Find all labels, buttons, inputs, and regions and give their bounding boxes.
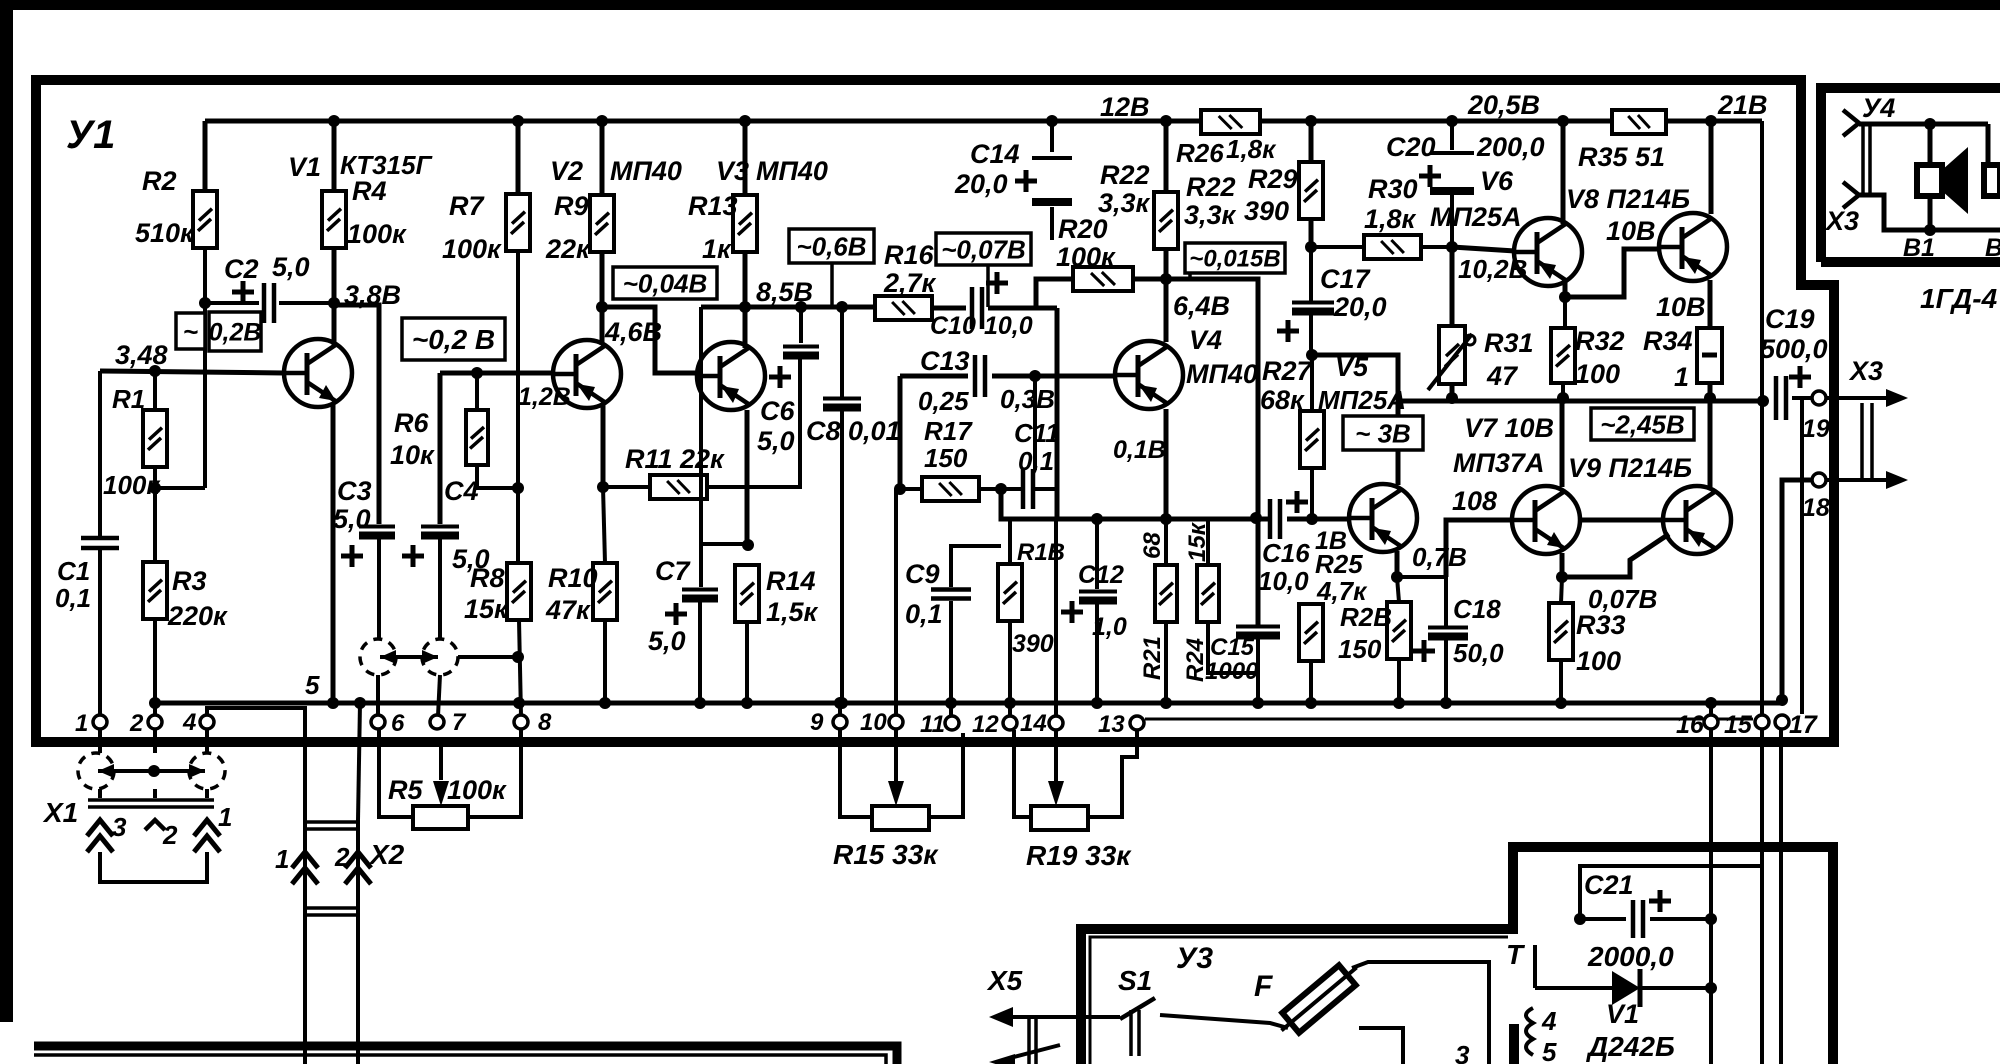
svg-text:V1: V1 xyxy=(1606,999,1639,1029)
svg-text:С20: С20 xyxy=(1386,132,1436,162)
svg-text:V2: V2 xyxy=(550,156,583,186)
svg-text:3: 3 xyxy=(1455,1040,1470,1064)
svg-text:108: 108 xyxy=(1452,486,1497,516)
svg-text:3,48: 3,48 xyxy=(115,340,168,370)
svg-text:~2,45В: ~2,45В xyxy=(1600,409,1685,439)
svg-text:2000,0: 2000,0 xyxy=(1587,941,1674,972)
svg-text:Х3: Х3 xyxy=(1824,206,1859,236)
svg-text:1,8к: 1,8к xyxy=(1226,134,1277,164)
svg-text:1: 1 xyxy=(275,844,289,874)
svg-text:18: 18 xyxy=(1802,494,1830,522)
svg-text:С1: С1 xyxy=(57,556,90,586)
svg-text:150: 150 xyxy=(924,443,968,473)
svg-text:МП40: МП40 xyxy=(1186,359,1258,389)
svg-text:R19 33к: R19 33к xyxy=(1026,840,1132,871)
svg-text:V9 П214Б: V9 П214Б xyxy=(1568,453,1692,483)
svg-text:6: 6 xyxy=(391,710,405,737)
svg-text:15к: 15к xyxy=(464,594,509,624)
svg-text:R31: R31 xyxy=(1484,328,1534,358)
svg-text:0,7В: 0,7В xyxy=(1412,542,1467,572)
svg-text:С3: С3 xyxy=(337,476,372,506)
svg-text:~0,2 В: ~0,2 В xyxy=(412,324,495,355)
svg-text:F: F xyxy=(1254,970,1273,1003)
svg-text:16: 16 xyxy=(1676,711,1705,739)
svg-text:5: 5 xyxy=(305,670,320,700)
svg-text:R4: R4 xyxy=(352,176,387,206)
svg-text:19: 19 xyxy=(1802,415,1830,443)
svg-text:1,5к: 1,5к xyxy=(766,597,819,627)
svg-text:15к: 15к xyxy=(1184,521,1211,562)
svg-text:~ 3В: ~ 3В xyxy=(1355,418,1411,448)
svg-text:R7: R7 xyxy=(449,191,485,221)
svg-text:Х5: Х5 xyxy=(986,965,1023,996)
svg-text:10,0: 10,0 xyxy=(1258,566,1309,596)
svg-text:1ГД-4: 1ГД-4 xyxy=(1920,283,1998,314)
svg-text:5,0: 5,0 xyxy=(272,252,310,282)
svg-text:С10: С10 xyxy=(930,312,976,340)
svg-text:100к: 100к xyxy=(442,234,502,264)
svg-text:100к: 100к xyxy=(447,775,507,805)
svg-text:С9: С9 xyxy=(905,559,940,589)
svg-text:R29: R29 xyxy=(1248,164,1298,194)
svg-text:R20: R20 xyxy=(1058,214,1108,244)
svg-text:5,0: 5,0 xyxy=(333,504,371,534)
svg-text:0,1: 0,1 xyxy=(905,599,943,629)
svg-text:С7: С7 xyxy=(655,556,691,586)
svg-text:R16: R16 xyxy=(884,240,935,270)
svg-text:С8: С8 xyxy=(806,416,841,446)
svg-text:V7 10В: V7 10В xyxy=(1464,413,1554,443)
svg-text:R10: R10 xyxy=(548,563,598,593)
svg-text:МП40: МП40 xyxy=(610,156,682,186)
svg-text:10: 10 xyxy=(860,709,887,736)
svg-text:У4: У4 xyxy=(1862,93,1895,123)
svg-text:V1: V1 xyxy=(288,152,321,182)
svg-text:R27: R27 xyxy=(1262,356,1314,386)
svg-text:МП25А: МП25А xyxy=(1430,202,1521,232)
svg-text:5: 5 xyxy=(1542,1037,1557,1064)
svg-text:С18: С18 xyxy=(1453,594,1501,624)
svg-text:20,5В: 20,5В xyxy=(1467,90,1540,120)
svg-text:R3: R3 xyxy=(172,566,207,596)
svg-text:R17: R17 xyxy=(924,416,973,446)
svg-text:R11 22к: R11 22к xyxy=(625,444,725,474)
svg-text:В1: В1 xyxy=(1903,234,1935,262)
svg-text:R2В: R2В xyxy=(1340,602,1392,632)
svg-text:1к: 1к xyxy=(702,234,732,264)
svg-text:С19: С19 xyxy=(1765,304,1815,334)
svg-text:68: 68 xyxy=(1139,532,1166,559)
svg-text:R8: R8 xyxy=(470,563,505,593)
svg-text:~0,04В: ~0,04В xyxy=(623,268,708,298)
svg-text:С16: С16 xyxy=(1262,538,1310,568)
svg-text:МП40: МП40 xyxy=(756,156,828,186)
svg-text:R6: R6 xyxy=(394,408,429,438)
svg-text:Х3: Х3 xyxy=(1848,356,1883,386)
svg-text:КТ315Г: КТ315Г xyxy=(340,150,433,180)
svg-text:R22: R22 xyxy=(1186,172,1236,202)
svg-text:6,4В: 6,4В xyxy=(1173,291,1230,321)
svg-text:47к: 47к xyxy=(545,595,591,625)
svg-text:2: 2 xyxy=(129,710,144,737)
svg-text:17: 17 xyxy=(1789,711,1818,739)
svg-text:4: 4 xyxy=(1541,1006,1557,1036)
svg-text:R34: R34 xyxy=(1643,326,1693,356)
svg-text:10,2В: 10,2В xyxy=(1458,254,1527,284)
svg-text:20,0: 20,0 xyxy=(954,169,1008,199)
svg-text:С21: С21 xyxy=(1584,870,1634,900)
svg-text:100к: 100к xyxy=(1056,242,1116,272)
svg-text:Х1: Х1 xyxy=(42,797,78,828)
svg-text:10к: 10к xyxy=(390,440,435,470)
svg-text:3,3к: 3,3к xyxy=(1184,200,1237,230)
svg-text:21В: 21В xyxy=(1717,90,1768,120)
svg-text:МП37А: МП37А xyxy=(1453,448,1544,478)
svg-text:1,2В: 1,2В xyxy=(518,383,571,411)
svg-text:V4: V4 xyxy=(1189,325,1222,355)
svg-text:0,3В: 0,3В xyxy=(1000,384,1055,414)
svg-text:7: 7 xyxy=(452,709,467,736)
svg-text:R25: R25 xyxy=(1315,549,1363,579)
svg-text:15: 15 xyxy=(1724,711,1753,739)
svg-text:0,1: 0,1 xyxy=(1018,446,1054,476)
svg-text:1,8к: 1,8к xyxy=(1364,204,1417,234)
svg-text:R15 33к: R15 33к xyxy=(833,839,939,870)
svg-text:R32: R32 xyxy=(1575,326,1625,356)
svg-text:0,01: 0,01 xyxy=(848,416,901,446)
svg-text:R13: R13 xyxy=(688,191,738,221)
svg-text:1: 1 xyxy=(218,802,232,832)
svg-text:R2: R2 xyxy=(142,166,177,196)
svg-text:0,1: 0,1 xyxy=(55,583,91,613)
svg-text:R9: R9 xyxy=(554,191,589,221)
svg-text:С14: С14 xyxy=(970,139,1020,169)
svg-text:~: ~ xyxy=(183,316,198,346)
svg-text:11: 11 xyxy=(920,711,945,738)
svg-text:12: 12 xyxy=(972,711,999,738)
svg-text:68к: 68к xyxy=(1260,385,1305,415)
svg-text:С11: С11 xyxy=(1014,418,1060,448)
svg-text:5,0: 5,0 xyxy=(757,426,795,456)
svg-text:R33: R33 xyxy=(1576,610,1626,640)
svg-text:2: 2 xyxy=(162,820,178,850)
svg-text:220к: 220к xyxy=(167,601,228,631)
svg-text:С17: С17 xyxy=(1320,264,1372,294)
svg-text:В: В xyxy=(1985,234,2000,262)
svg-text:V8 П214Б: V8 П214Б xyxy=(1566,184,1690,214)
svg-text:10В: 10В xyxy=(1606,216,1656,246)
svg-text:50,0: 50,0 xyxy=(1453,638,1504,668)
svg-text:~0,07В: ~0,07В xyxy=(941,234,1026,264)
svg-text:Х2: Х2 xyxy=(368,839,405,870)
svg-text:13: 13 xyxy=(1098,711,1125,738)
svg-text:100: 100 xyxy=(1575,359,1620,389)
svg-text:С15: С15 xyxy=(1210,634,1255,661)
svg-text:R14: R14 xyxy=(766,566,816,596)
svg-text:R5: R5 xyxy=(388,775,423,805)
svg-text:1000: 1000 xyxy=(1205,658,1259,685)
svg-text:12В: 12В xyxy=(1100,92,1150,122)
svg-text:0,2В: 0,2В xyxy=(209,319,262,347)
svg-text:200,0: 200,0 xyxy=(1476,132,1545,162)
svg-text:У3: У3 xyxy=(1176,942,1213,975)
svg-text:С2: С2 xyxy=(224,254,259,284)
svg-text:~0,6В: ~0,6В xyxy=(796,231,866,261)
svg-text:0,1В: 0,1В xyxy=(1113,436,1166,464)
svg-text:5,0: 5,0 xyxy=(648,626,686,656)
svg-text:S1: S1 xyxy=(1118,965,1152,996)
svg-text:С6: С6 xyxy=(760,396,795,426)
svg-text:R21: R21 xyxy=(1139,636,1166,680)
svg-text:R22: R22 xyxy=(1100,160,1150,190)
svg-text:4: 4 xyxy=(182,709,196,736)
svg-text:МП25А: МП25А xyxy=(1318,385,1406,415)
svg-text:Д242Б: Д242Б xyxy=(1586,1031,1675,1062)
svg-text:1,0: 1,0 xyxy=(1092,613,1127,641)
svg-text:510к: 510к xyxy=(135,218,195,248)
svg-text:10В: 10В xyxy=(1656,292,1706,322)
svg-text:R26: R26 xyxy=(1176,138,1224,168)
svg-text:100: 100 xyxy=(1576,646,1621,676)
svg-text:8: 8 xyxy=(538,709,552,736)
svg-text:V3: V3 xyxy=(716,156,749,186)
svg-text:3: 3 xyxy=(112,812,127,842)
svg-text:R35 51: R35 51 xyxy=(1578,142,1665,172)
svg-text:150: 150 xyxy=(1338,634,1382,664)
svg-text:20,0: 20,0 xyxy=(1333,292,1387,322)
svg-text:3,3к: 3,3к xyxy=(1098,188,1151,218)
svg-text:~0,015В: ~0,015В xyxy=(1189,246,1280,273)
svg-text:V6: V6 xyxy=(1480,166,1514,196)
svg-text:47: 47 xyxy=(1486,361,1519,391)
svg-text:С12: С12 xyxy=(1078,561,1124,589)
svg-text:500,0: 500,0 xyxy=(1760,334,1828,364)
svg-text:С13: С13 xyxy=(920,346,970,376)
svg-text:14: 14 xyxy=(1020,710,1047,737)
svg-text:10,0: 10,0 xyxy=(984,312,1033,340)
svg-text:9: 9 xyxy=(810,709,824,736)
svg-text:1: 1 xyxy=(75,710,88,737)
svg-text:Т: Т xyxy=(1506,939,1526,970)
svg-text:У1: У1 xyxy=(66,113,115,157)
svg-text:С4: С4 xyxy=(444,476,479,506)
svg-text:390: 390 xyxy=(1012,630,1054,658)
svg-text:100к: 100к xyxy=(347,219,407,249)
svg-text:22к: 22к xyxy=(545,234,591,264)
svg-text:0,07В: 0,07В xyxy=(1588,584,1657,614)
svg-text:2,7к: 2,7к xyxy=(883,268,937,298)
svg-text:0,25: 0,25 xyxy=(918,386,969,416)
svg-text:390: 390 xyxy=(1244,196,1289,226)
svg-text:R1: R1 xyxy=(112,384,145,414)
svg-text:1: 1 xyxy=(1674,362,1689,392)
svg-text:R30: R30 xyxy=(1368,174,1418,204)
